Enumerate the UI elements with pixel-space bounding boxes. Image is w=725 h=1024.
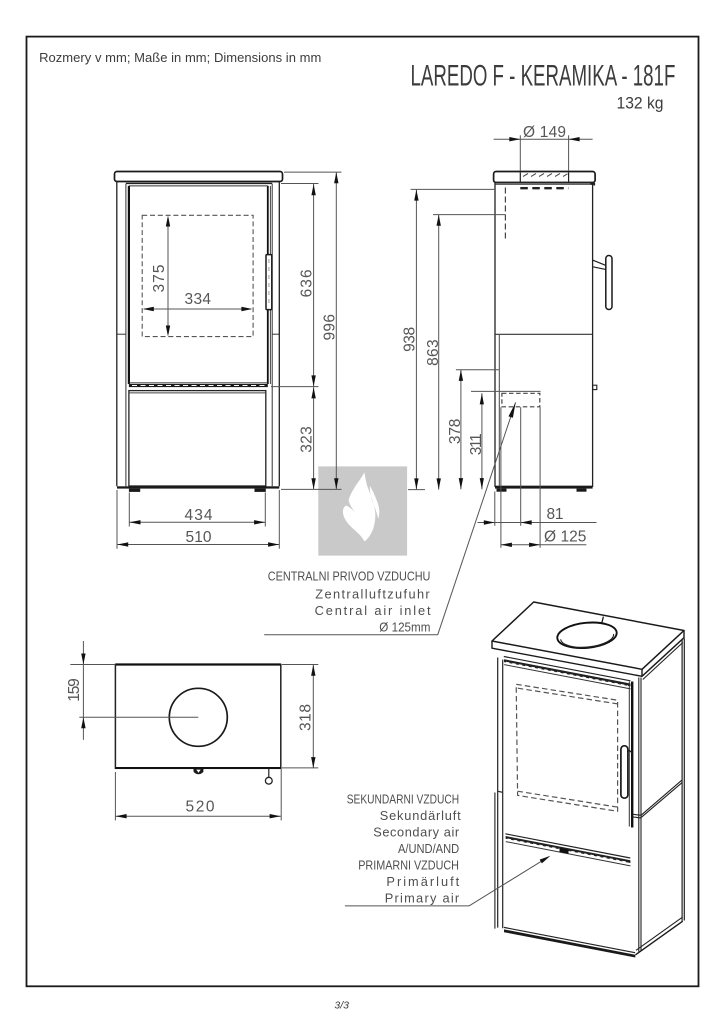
svg-text:636: 636 (299, 269, 316, 297)
svg-text:LAREDO F - KERAMIKA - 181F: LAREDO F - KERAMIKA - 181F (411, 59, 676, 93)
svg-text:81: 81 (547, 506, 564, 523)
svg-text:311: 311 (468, 433, 485, 455)
svg-text:Ø 149: Ø 149 (523, 124, 566, 141)
svg-text:Ø 125mm: Ø 125mm (379, 620, 430, 635)
svg-text:520: 520 (186, 799, 215, 816)
svg-text:Primary air: Primary air (385, 891, 460, 906)
svg-text:378: 378 (447, 419, 464, 445)
svg-text:323: 323 (299, 426, 316, 453)
svg-text:863: 863 (425, 339, 442, 366)
svg-text:SEKUNDARNI VZDUCH: SEKUNDARNI VZDUCH (347, 794, 459, 807)
svg-text:A/UND/AND: A/UND/AND (398, 841, 459, 856)
svg-text:Zentralluftzufuhr: Zentralluftzufuhr (315, 586, 430, 601)
svg-text:PRIMARNI VZDUCH: PRIMARNI VZDUCH (358, 858, 459, 873)
svg-text:132 kg: 132 kg (617, 94, 664, 113)
svg-text:334: 334 (185, 291, 212, 308)
svg-text:Ø 125: Ø 125 (544, 529, 586, 546)
svg-text:996: 996 (321, 314, 338, 341)
svg-text:510: 510 (186, 529, 212, 546)
svg-text:434: 434 (185, 507, 213, 524)
svg-text:938: 938 (402, 327, 419, 352)
svg-text:375: 375 (151, 265, 168, 293)
svg-text:Rozmery v mm; Maße in mm; Dime: Rozmery v mm; Maße in mm; Dimensions in … (39, 50, 321, 65)
svg-text:159: 159 (66, 678, 83, 702)
svg-text:3/3: 3/3 (334, 1000, 349, 1012)
svg-text:318: 318 (297, 704, 314, 731)
svg-text:CENTRALNI PRIVOD VZDUCHU: CENTRALNI PRIVOD VZDUCHU (268, 568, 431, 583)
svg-text:Sekundärluft: Sekundärluft (380, 808, 461, 823)
svg-text:Secondary air: Secondary air (373, 824, 460, 839)
